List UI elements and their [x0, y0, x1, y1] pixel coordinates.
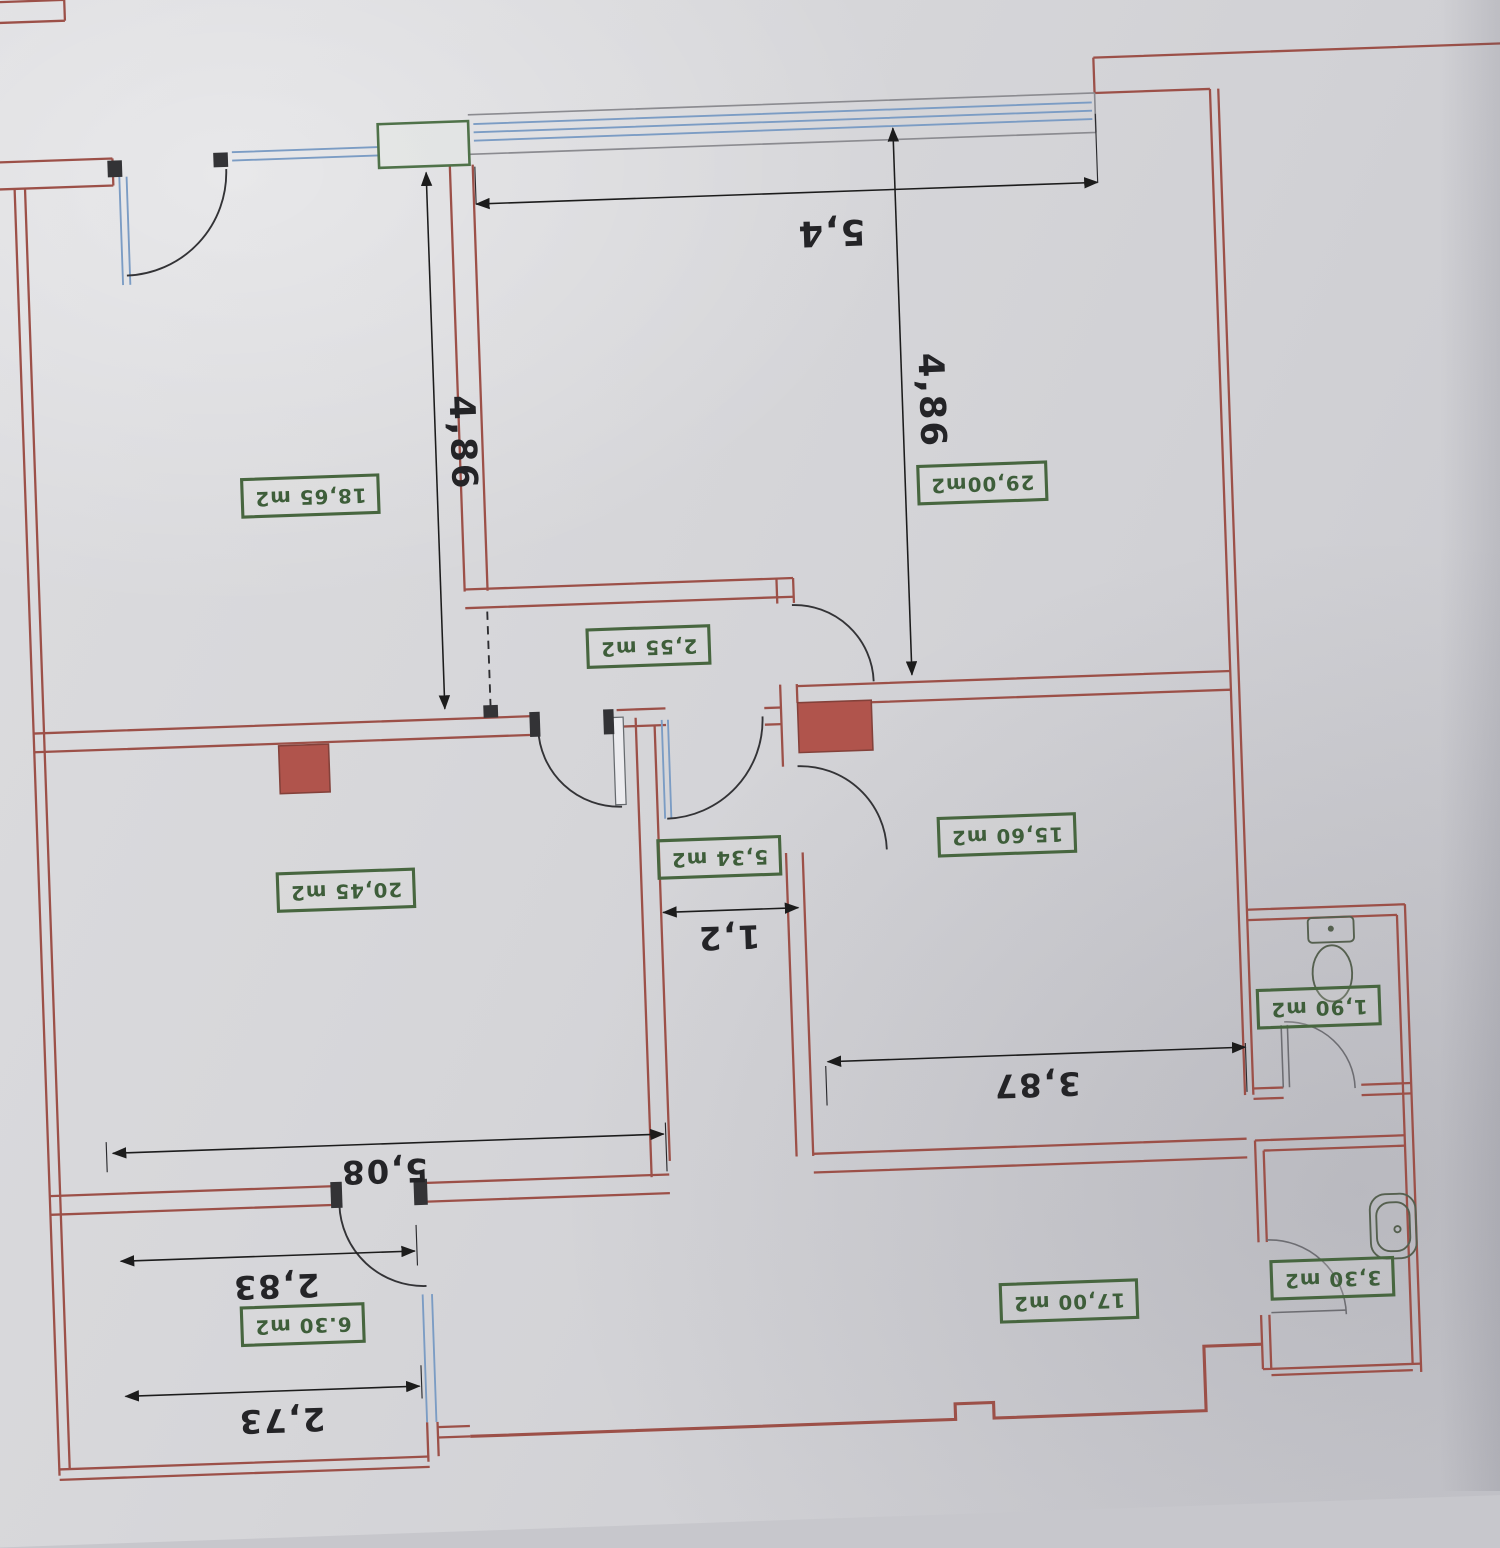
dim-text-3-87: 3,87 — [992, 1066, 1081, 1101]
wall-bathroom — [1255, 1135, 1421, 1375]
washbasin-bowl — [1376, 1202, 1411, 1252]
wc-door-arc — [1284, 1019, 1355, 1090]
entry-door-leaf — [119, 177, 130, 285]
wall-pier — [764, 707, 781, 724]
dimension-extension-lines — [72, 110, 1257, 1410]
dim-text-4-86-left: 4,86 — [443, 394, 482, 491]
extension-lines — [72, 110, 1257, 1410]
room-label-2-55: 2,55 m2 — [586, 624, 712, 669]
wall-room6-bottom — [813, 1139, 1247, 1173]
room-label-17-00: 17,00 m2 — [999, 1278, 1139, 1323]
toilet-button — [1329, 927, 1333, 931]
window-end-post — [378, 121, 470, 168]
corridor-door-arc — [664, 716, 766, 818]
main-window-glass — [473, 102, 1092, 140]
dim-line-4-86-right — [893, 128, 912, 675]
room-label-29-00: 29,00m2 — [916, 460, 1049, 505]
dim-line-5-4 — [476, 182, 1098, 204]
entry-sidelight-window — [232, 147, 379, 160]
washbasin — [1369, 1193, 1417, 1259]
wall-bottom-outer — [468, 1344, 1264, 1436]
room-label-6-30: 6.30 m2 — [240, 1302, 366, 1347]
room-label-3-30: 3,30 m2 — [1270, 1256, 1396, 1301]
plan-photo-paper: 18,65 m2 29,00m2 2,55 m2 20,45 m2 5,34 m… — [0, 0, 1500, 1548]
dim-text-2-83: 2,83 — [231, 1267, 320, 1302]
shafts — [278, 700, 874, 793]
hall-room1-opening-dashed — [487, 612, 490, 710]
balcony-door-arc — [339, 1202, 426, 1289]
washbasin-drain — [1394, 1226, 1400, 1232]
wall-left-outer — [15, 189, 70, 1476]
hall-room4-door-arc — [538, 726, 622, 810]
room4-door-jamb-right — [603, 709, 614, 734]
dimension-lines — [78, 117, 1256, 1397]
window-frames — [468, 93, 1096, 154]
room-label-18-65: 18,65 m2 — [240, 473, 380, 518]
corridor-door-leaf — [662, 720, 672, 819]
dim-text-1-2: 1,2 — [696, 919, 760, 953]
bathroom-door-leaf — [1271, 1310, 1346, 1313]
shaft-right — [797, 700, 873, 752]
wall-room1-hall — [450, 165, 488, 592]
entry-jamb-left — [107, 160, 122, 177]
wall-fragment-top-left — [0, 0, 65, 25]
wall-entry-top — [0, 158, 113, 191]
floor-plan-photo: { "plan": { "rooms": [ {"id": "room-1", … — [0, 0, 1500, 1491]
entry-jamb-right — [213, 152, 228, 167]
hall-room2-door-arc — [792, 602, 874, 684]
dim-text-5-4: 5,4 — [796, 213, 866, 251]
wall-balcony-bottom — [59, 1457, 429, 1480]
door-arcs — [123, 147, 901, 1295]
dim-line-2-73 — [125, 1386, 419, 1396]
wall-balcony-partition — [427, 1421, 471, 1462]
hall-room1-jamb — [483, 705, 498, 718]
wc-door-leaf — [1281, 1025, 1289, 1088]
room-label-5-34: 5,34 m2 — [657, 835, 783, 880]
shaft-left — [279, 744, 331, 794]
wall-corridor-left — [617, 708, 682, 1177]
balcony-window — [423, 1294, 437, 1422]
dim-text-5-08: 5,08 — [339, 1152, 428, 1187]
dim-text-4-86-right: 4,86 — [912, 352, 951, 449]
glazing — [118, 102, 1137, 1431]
wall-right-outer — [1210, 89, 1253, 1095]
wall-wc-bottom — [1253, 1083, 1411, 1099]
dim-line-3-87 — [828, 1047, 1246, 1062]
room-label-15-60: 15,60 m2 — [937, 812, 1077, 857]
door-jambs — [107, 140, 630, 1215]
corridor-room6-door-arc — [798, 763, 887, 852]
wall-top-right — [1093, 43, 1500, 93]
entry-door-arc — [123, 169, 229, 275]
dim-line-1-2 — [663, 908, 798, 913]
room4-door-jamb-left — [529, 712, 540, 737]
dim-line-5-08 — [113, 1134, 664, 1153]
dim-text-2-73: 2,73 — [237, 1401, 326, 1436]
main-window-frame — [468, 93, 1096, 154]
room-label-1-90: 1,90 m2 — [1256, 985, 1382, 1030]
floor-plan-drawing — [0, 0, 1500, 1548]
dim-line-2-83 — [121, 1251, 415, 1261]
hall-room4-door-leaf — [613, 717, 626, 805]
room-label-20-45: 20,45 m2 — [276, 868, 416, 913]
wall-hall-top — [465, 578, 794, 608]
